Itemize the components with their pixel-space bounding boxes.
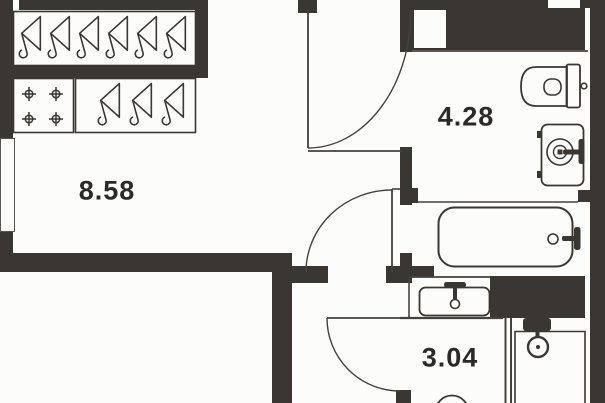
door-bottom	[327, 318, 400, 391]
floor-plan: 8.58 4.28 3.04	[0, 0, 605, 403]
hanger-icons-top	[19, 17, 185, 58]
room-label-toilet-room: 3.04	[422, 343, 479, 374]
room-label-kitchen: 8.58	[79, 176, 136, 207]
door-top	[308, 10, 411, 148]
toilet-icon	[521, 65, 587, 108]
toilet-partial-icon	[436, 396, 469, 403]
washing-machine-icon	[537, 125, 585, 186]
hanger-icons-inner	[98, 84, 183, 125]
shower-icon	[506, 318, 586, 403]
stove-box	[14, 79, 74, 133]
sink-icon	[420, 282, 490, 316]
stove-burner-icons	[22, 87, 63, 126]
room-label-bathroom: 4.28	[438, 102, 495, 133]
door-middle	[306, 189, 400, 272]
bathtub-icon	[439, 208, 581, 267]
